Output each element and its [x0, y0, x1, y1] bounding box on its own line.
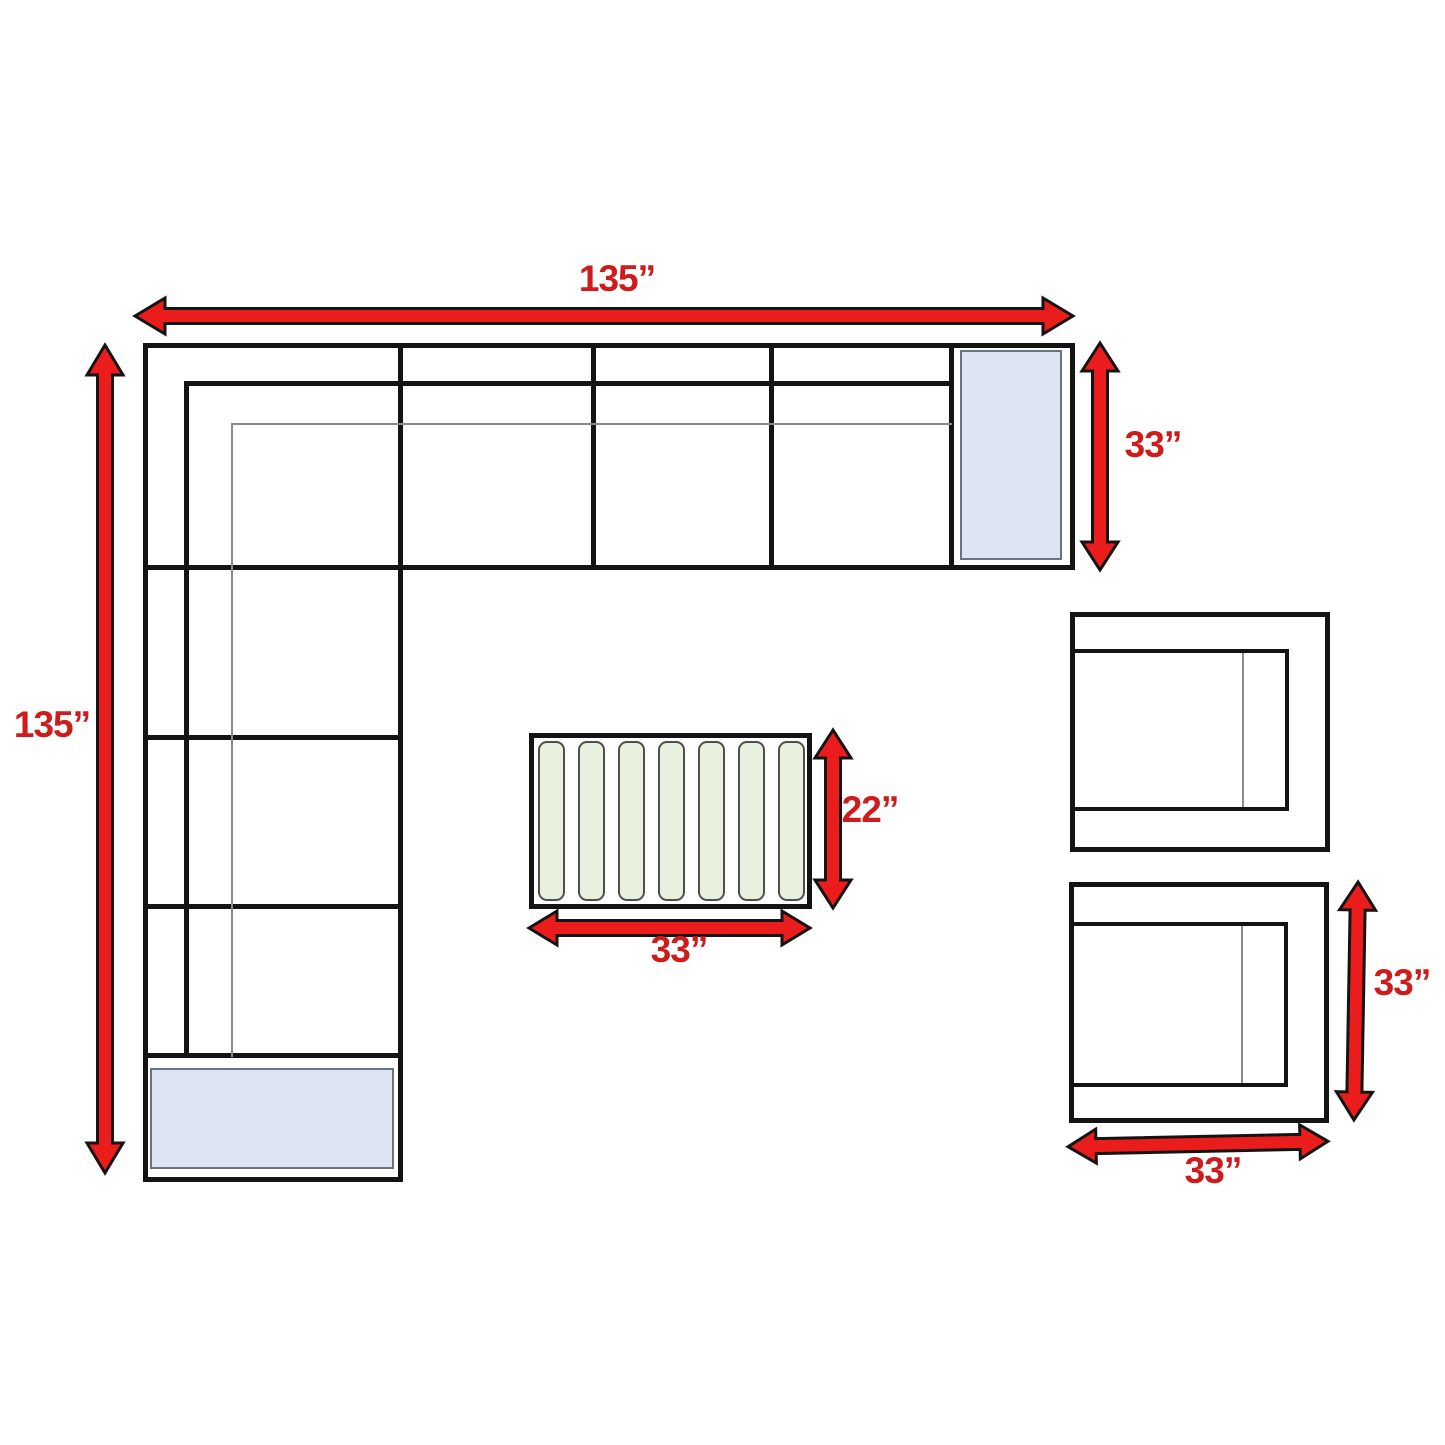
end-table-top-right: [960, 350, 1062, 560]
seat-divider: [143, 735, 403, 740]
armchair-depth-arrow: [1332, 880, 1380, 1123]
coffee-table-width-label: 33”: [629, 931, 729, 968]
backrest-line-vertical: [184, 381, 189, 1057]
coffee-table-slat: [618, 741, 645, 901]
coffee-table-slat: [538, 741, 565, 901]
armchair-bottom-seat-line: [1241, 926, 1243, 1083]
coffee-table-slat: [738, 741, 765, 901]
sectional-depth-label: 33”: [1108, 426, 1198, 463]
armchair-top-seat-line: [1242, 653, 1244, 807]
seat-divider: [143, 1053, 403, 1058]
coffee-table-slat: [698, 741, 725, 901]
armchair-top-seat: [1075, 649, 1289, 811]
sectional-height-label: 135”: [6, 706, 98, 743]
armchair-bottom-seat: [1074, 922, 1288, 1087]
coffee-table-slat: [658, 741, 685, 901]
end-table-bottom-left: [150, 1068, 394, 1169]
sectional-width-arrow: [133, 294, 1075, 338]
armchair-depth-label: 33”: [1360, 964, 1444, 1001]
sectional-width-label: 135”: [555, 260, 679, 297]
sectional-height-arrow: [83, 343, 127, 1175]
floor-plan-canvas: 135” 135” 33” 22” 33” 33” 33”: [0, 0, 1445, 1445]
seat-divider: [143, 904, 403, 909]
armchair-width-label: 33”: [1171, 1152, 1255, 1189]
coffee-table-slat: [778, 741, 805, 901]
coffee-table-depth-label: 22”: [830, 791, 910, 828]
seat-divider: [591, 343, 596, 570]
backrest-line-horizontal: [186, 381, 952, 386]
seat-edge-line-horizontal: [231, 423, 952, 425]
seat-divider: [949, 343, 954, 570]
coffee-table-slat: [578, 741, 605, 901]
seat-divider: [769, 343, 774, 570]
seat-edge-line-vertical: [231, 423, 233, 1057]
